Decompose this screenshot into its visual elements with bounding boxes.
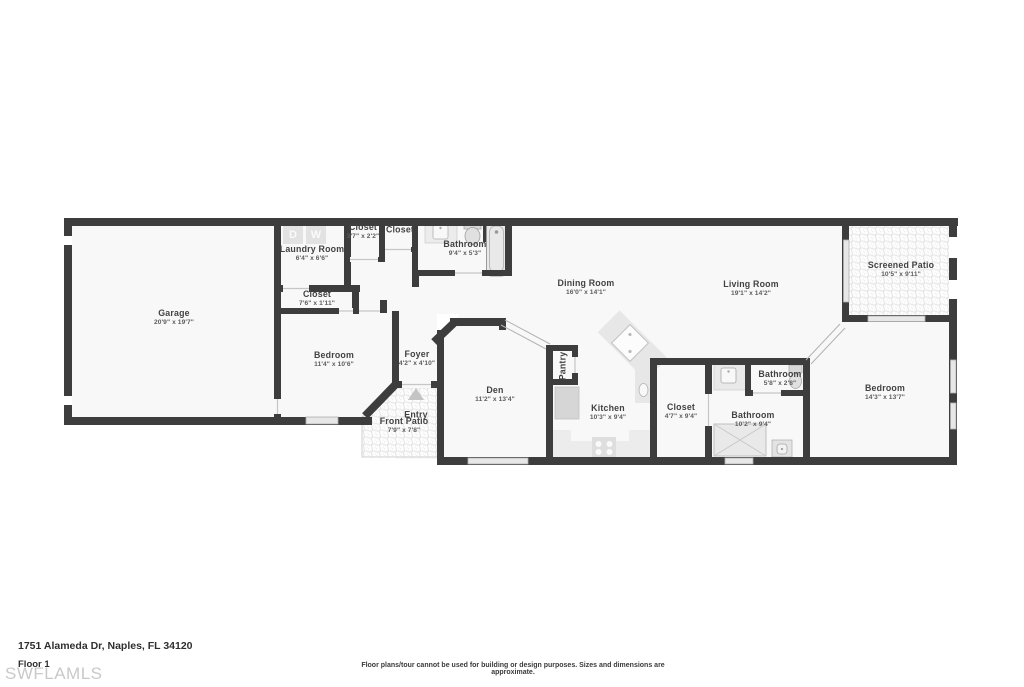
wall-break — [64, 396, 72, 405]
slider-door — [844, 240, 850, 302]
toilet-icon — [789, 365, 802, 373]
sink-icon — [721, 368, 736, 383]
window — [468, 458, 528, 464]
wall-break — [64, 236, 72, 245]
mls-watermark: SWFLAMLS — [5, 664, 103, 684]
stove-icon — [592, 437, 616, 457]
window — [725, 458, 753, 464]
island-sink-icon — [639, 384, 648, 397]
bathtub-icon — [487, 222, 507, 276]
window — [306, 417, 338, 424]
toilet-icon — [772, 440, 792, 457]
disclaimer-text: Floor plans/tour cannot be used for buil… — [352, 662, 674, 676]
fridge-icon — [555, 387, 579, 419]
bathroom2-fixtures — [789, 365, 802, 389]
floor-plan: D W — [0, 0, 1024, 682]
screened-patio-floor — [849, 225, 950, 316]
window — [951, 360, 957, 393]
dryer-letter: D — [289, 229, 297, 241]
shower-icon — [714, 424, 766, 456]
screen-opening — [949, 237, 957, 258]
washer-letter: W — [311, 229, 322, 241]
property-address: 1751 Alameda Dr, Naples, FL 34120 — [18, 640, 193, 652]
screen-opening — [949, 280, 957, 299]
slider-door — [868, 316, 925, 322]
window — [951, 403, 957, 429]
floor-plan-drawing: D W — [0, 0, 1024, 682]
